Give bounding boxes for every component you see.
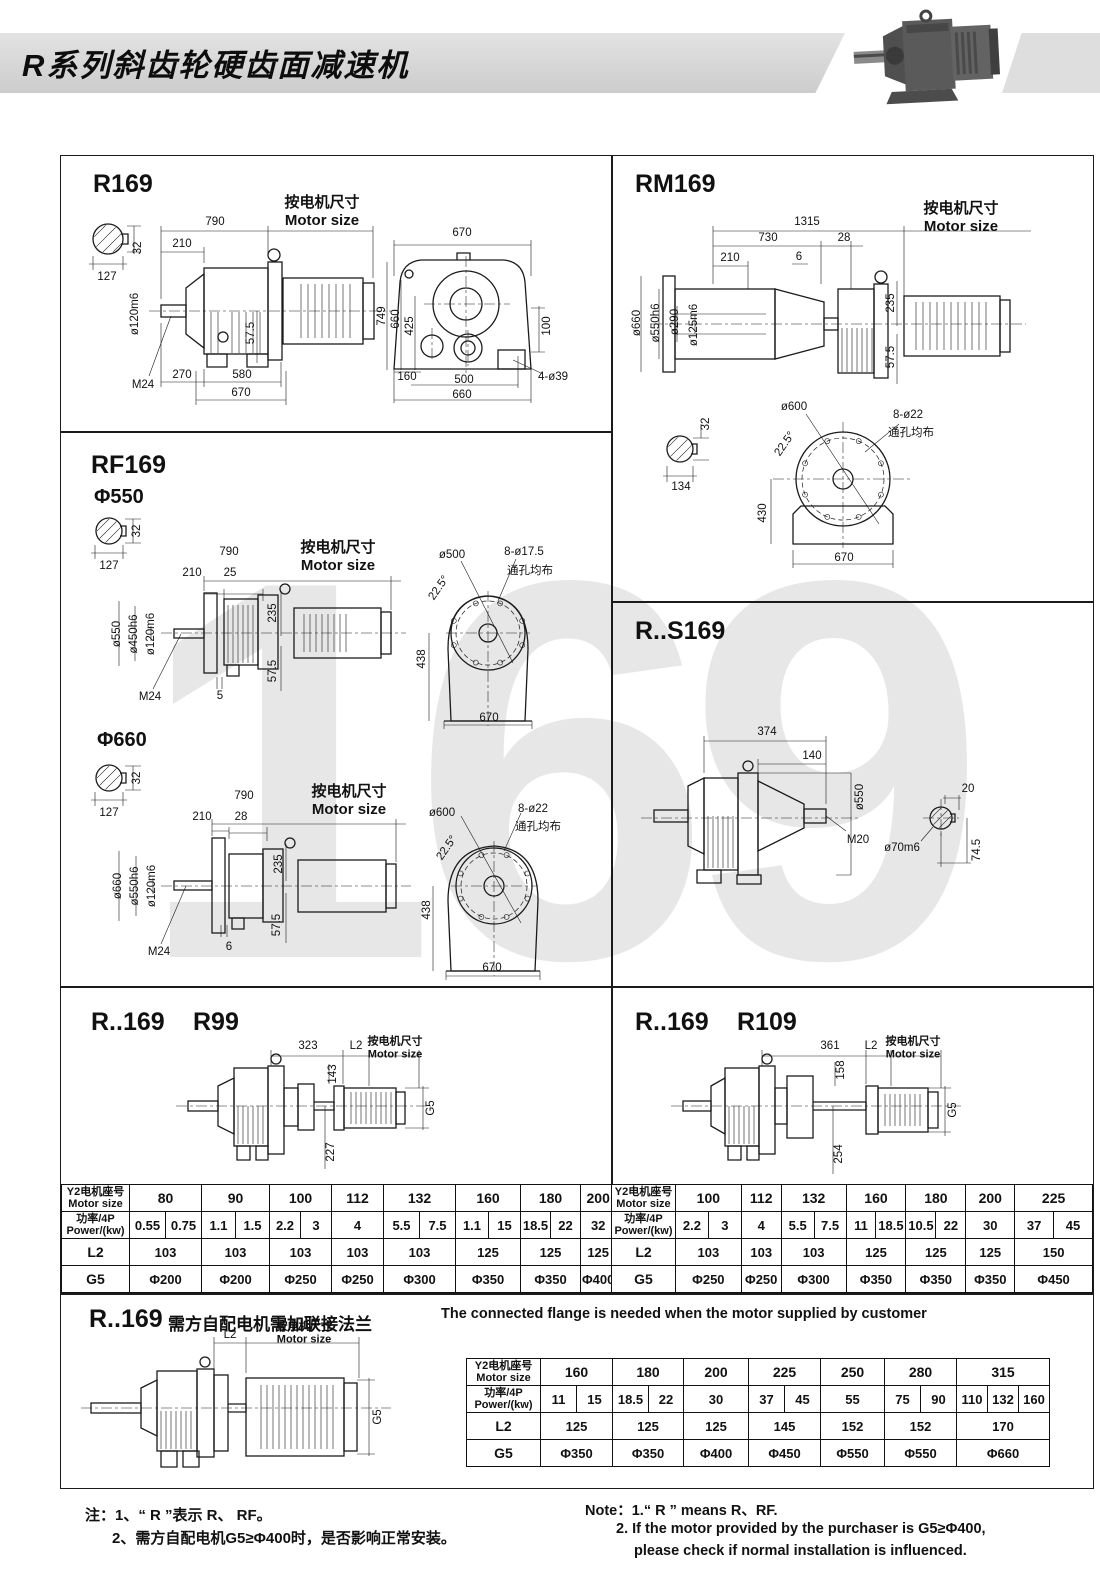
value-cell: 103 [130,1239,202,1266]
value-cell: 125 [456,1239,521,1266]
value-cell: 37 [749,1386,785,1413]
dim-label: 438 [421,900,433,919]
value-cell: Φ350 [521,1266,581,1293]
row-header-cell: Y2电机座号 Motor size [612,1185,676,1212]
dim-label: 5 [217,690,223,702]
dim-label: 430 [757,503,769,522]
dim-label: G5 [425,1100,437,1115]
dim-label: 660 [390,309,402,328]
value-cell: 0.75 [166,1212,202,1239]
motor-size-label: 按电机尺寸 Motor size [277,1320,332,1345]
motor-size-label: 按电机尺寸 Motor size [284,194,359,230]
row-header-cell: G5 [467,1440,541,1467]
dim-label: 580 [232,369,251,381]
dim-label: 374 [757,726,776,738]
dim-label: 57.5 [885,346,897,368]
dim-label: 235 [267,603,279,622]
panel-subtitle-cn: 需方自配电机需加联接法兰 [168,1310,372,1335]
dim-label: ø600 [781,401,807,413]
value-cell: 125 [906,1239,966,1266]
value-cell: 200 [966,1185,1015,1212]
value-cell: Φ450 [749,1440,821,1467]
value-cell: 315 [957,1359,1050,1386]
row-header-cell: 功率/4P Power/(kw) [467,1386,541,1413]
dim-label: 790 [205,216,224,228]
value-cell: 160 [456,1185,521,1212]
dim-label: 670 [834,552,853,564]
value-cell: 1.1 [456,1212,489,1239]
spec-table-flange: Y2电机座号 Motor size160180200225250280315功率… [466,1358,1050,1467]
dim-label: M24 [132,379,154,391]
dim-label: 74.5 [971,839,983,861]
note-en-3: please check if normal installation is i… [634,1543,967,1559]
rm169-drawing [611,156,1093,601]
dim-label: 790 [219,546,238,558]
value-cell: 112 [741,1185,781,1212]
dim-label: 235 [273,854,285,873]
dim-label: 235 [885,293,897,312]
motor-size-label: 按电机尺寸 Motor size [311,783,386,819]
value-cell: 22 [649,1386,684,1413]
dim-label: 210 [720,252,739,264]
dim-label: 57.5 [267,660,279,682]
value-cell: 125 [684,1413,749,1440]
value-cell: 2.2 [675,1212,708,1239]
dim-label: 127 [99,807,118,819]
value-cell: 15 [489,1212,521,1239]
dim-label: 670 [479,712,498,724]
value-cell: Φ350 [966,1266,1015,1293]
value-cell: 125 [541,1413,613,1440]
dim-label: 32 [131,772,143,785]
row-header-cell: Y2电机座号 Motor size [62,1185,130,1212]
panel-title: RF169 [91,451,166,480]
dim-label: 790 [234,790,253,802]
value-cell: 160 [1019,1386,1050,1413]
value-cell: 125 [966,1239,1015,1266]
value-cell: Φ400 [684,1440,749,1467]
dim-label: L2 [350,1040,363,1052]
dim-label: 8-ø22 [518,803,548,815]
value-cell: 132 [384,1185,456,1212]
dim-label: 100 [541,316,553,335]
panel-title: R99 [193,1008,239,1037]
dim-label: 通孔均布 [507,562,553,578]
value-cell: 152 [885,1413,957,1440]
value-cell: Φ350 [613,1440,684,1467]
value-cell: 250 [821,1359,885,1386]
dim-label: ø70m6 [884,842,920,854]
dim-label: ø120m6 [145,613,157,655]
value-cell: 112 [332,1185,384,1212]
panel-subtitle: Φ660 [97,729,147,752]
value-cell: 2.2 [270,1212,301,1239]
panel-rm169: RM169 1315 730 28 210 6 按电机尺寸 Motor size… [611,156,1093,601]
panel-title: R..169 [91,1008,165,1037]
value-cell: 7.5 [420,1212,456,1239]
dim-label: ø550h6 [129,866,141,905]
value-cell: 150 [1015,1239,1093,1266]
row-header-cell: 功率/4P Power/(kw) [612,1212,676,1239]
value-cell: 75 [885,1386,921,1413]
row-header-cell: L2 [612,1239,676,1266]
panel-title: R..169 [89,1305,163,1334]
value-cell: 152 [821,1413,885,1440]
drawing-sheet: 169 [60,155,1094,1489]
dim-label: ø660 [112,873,124,899]
dim-label: 127 [99,560,118,572]
dim-label: 749 [376,306,388,325]
dim-label: 254 [833,1144,845,1163]
dim-label: G5 [372,1409,384,1424]
panel-r109: R..169 R109 361 L2 按电机尺寸 Motor size 158 … [611,986,1093,1184]
motor-size-label: 按电机尺寸 Motor size [886,1035,941,1060]
value-cell: 170 [957,1413,1050,1440]
panel-rs169: R..S169 374 140 ø550 M20 20 ø70m6 74.5 [611,601,1093,986]
panel-title: R..169 [635,1008,709,1037]
dim-label: 438 [416,649,428,668]
dim-label: G5 [947,1102,959,1117]
gearmotor-photo [848,4,1010,110]
value-cell: 132 [781,1185,846,1212]
value-cell: 100 [675,1185,741,1212]
page: R系列斜齿轮硬齿面减速机 169 [0,0,1100,1583]
value-cell: 30 [684,1386,749,1413]
dim-label: 500 [454,374,473,386]
value-cell: 1.5 [236,1212,270,1239]
value-cell: 15 [577,1386,613,1413]
dim-label: ø550 [854,784,866,810]
value-cell: 5.5 [781,1212,814,1239]
value-cell: 45 [1054,1212,1093,1239]
value-cell: 103 [384,1239,456,1266]
value-cell: Φ250 [332,1266,384,1293]
value-cell: Φ550 [821,1440,885,1467]
panel-rf169: RF169 Φ550 127 32 790 210 25 按电机尺寸 Motor… [61,431,611,986]
value-cell: 100 [270,1185,332,1212]
value-cell: 18.5 [876,1212,906,1239]
spec-table-r109: Y2电机座号 Motor size100112132160180200225功率… [611,1184,1093,1293]
value-cell: Φ200 [202,1266,270,1293]
dim-label: 670 [452,227,471,239]
dim-label: L2 [224,1329,237,1341]
dim-label: 127 [97,271,116,283]
value-cell: 10.5 [906,1212,936,1239]
value-cell: Φ350 [541,1440,613,1467]
dim-label: 57.5 [271,914,283,936]
dim-label: 8-ø17.5 [504,546,544,558]
dim-label: 210 [172,238,191,250]
value-cell: 45 [785,1386,821,1413]
panel-title: R..S169 [635,617,725,646]
value-cell: Φ550 [885,1440,957,1467]
value-cell: 30 [966,1212,1015,1239]
note-en-1: Note：1.“ R ” means R、RF. [585,1499,778,1520]
dim-label: 6 [226,941,232,953]
dim-label: L2 [865,1040,878,1052]
value-cell: 3 [301,1212,332,1239]
value-cell: 180 [906,1185,966,1212]
value-cell: 3 [708,1212,741,1239]
value-cell: 37 [1015,1212,1054,1239]
row-header-cell: L2 [467,1413,541,1440]
dim-label: 143 [327,1064,339,1083]
value-cell: 103 [781,1239,846,1266]
note-en-2: 2. If the motor provided by the purchase… [616,1521,986,1537]
value-cell: 103 [270,1239,332,1266]
value-cell: 18.5 [613,1386,649,1413]
panel-title: R169 [93,170,153,199]
dim-label: 通孔均布 [515,818,561,834]
value-cell: 0.55 [130,1212,166,1239]
dim-label: 20 [962,783,975,795]
dim-label: 25 [224,567,237,579]
panel-title: R109 [737,1008,797,1037]
value-cell: 225 [1015,1185,1093,1212]
value-cell: 125 [521,1239,581,1266]
dim-label: ø550 [111,621,123,647]
value-cell: Φ350 [846,1266,906,1293]
panel-r99: R..169 R99 323 L2 按电机尺寸 Motor size 143 2… [61,986,611,1184]
row-header-cell: G5 [62,1266,130,1293]
value-cell: Φ250 [270,1266,332,1293]
dim-label: 57.5 [245,322,257,344]
dim-label: 4-ø39 [538,371,568,383]
dim-label: M20 [847,834,869,846]
dim-label: 425 [404,316,416,335]
value-cell: Φ450 [1015,1266,1093,1293]
dim-label: 670 [231,387,250,399]
value-cell: Φ300 [384,1266,456,1293]
motor-size-label: 按电机尺寸 Motor size [923,200,998,236]
panel-subtitle-en: The connected flange is needed when the … [441,1306,927,1322]
value-cell: 90 [202,1185,270,1212]
dim-label: ø120m6 [146,865,158,907]
value-cell: 18.5 [521,1212,551,1239]
dim-label: ø290 [669,309,681,335]
dim-label: 227 [325,1142,337,1161]
value-cell: Φ250 [741,1266,781,1293]
value-cell: 4 [332,1212,384,1239]
dim-label: 28 [235,811,248,823]
dim-label: 270 [172,369,191,381]
motor-size-label: 按电机尺寸 Motor size [368,1035,423,1060]
value-cell: 1.1 [202,1212,236,1239]
panel-subtitle: Φ550 [94,486,144,509]
row-header-cell: 功率/4P Power/(kw) [62,1212,130,1239]
row-header-cell: Y2电机座号 Motor size [467,1359,541,1386]
value-cell: 180 [521,1185,581,1212]
dim-label: 6 [796,251,802,263]
dim-label: ø500 [439,549,465,561]
value-cell: 103 [675,1239,741,1266]
value-cell: 125 [846,1239,906,1266]
dim-label: M24 [148,946,170,958]
dim-label: 323 [298,1040,317,1052]
dim-label: ø450h6 [128,614,140,653]
dim-label: 210 [192,811,211,823]
value-cell: 160 [541,1359,613,1386]
dim-label: 730 [758,232,777,244]
panel-title: RM169 [635,170,716,199]
note-cn-1: 注：1、“ R ”表示 R、 RF。 [85,1504,272,1525]
value-cell: 110 [957,1386,988,1413]
dim-label: 28 [838,232,851,244]
value-cell: 132 [988,1386,1019,1413]
rf169-drawing [61,431,611,986]
value-cell: Φ350 [456,1266,521,1293]
dim-label: 134 [671,481,690,493]
value-cell: 90 [921,1386,957,1413]
header-banner-right [1002,33,1100,93]
value-cell: 103 [741,1239,781,1266]
dim-label: 140 [802,750,821,762]
dim-label: 660 [452,389,471,401]
dim-label: 32 [132,242,144,255]
value-cell: 22 [936,1212,966,1239]
value-cell: Φ300 [781,1266,846,1293]
dim-label: ø600 [429,807,455,819]
motor-size-label: 按电机尺寸 Motor size [300,539,375,575]
dim-label: ø125m6 [688,304,700,346]
spec-table-r99: Y2电机座号 Motor size8090100112132160180200功… [61,1184,616,1293]
value-cell: 103 [202,1239,270,1266]
dim-label: 通孔均布 [888,424,934,440]
dim-label: 1315 [794,216,820,228]
dim-label: 32 [700,418,712,431]
value-cell: 11 [846,1212,876,1239]
dim-label: 210 [182,567,201,579]
dim-label: ø550h6 [650,303,662,342]
rs169-drawing [611,601,1093,986]
dim-label: M24 [139,691,161,703]
value-cell: 4 [741,1212,781,1239]
value-cell: 55 [821,1386,885,1413]
value-cell: 180 [613,1359,684,1386]
dim-label: ø120m6 [129,293,141,335]
value-cell: 103 [332,1239,384,1266]
dim-label: 670 [482,962,501,974]
value-cell: Φ200 [130,1266,202,1293]
value-cell: 280 [885,1359,957,1386]
row-header-cell: G5 [612,1266,676,1293]
panel-r169: R169 127 32 790 按电机尺寸 Motor size 210 ø12… [61,156,611,431]
dim-label: 361 [820,1040,839,1052]
value-cell: 5.5 [384,1212,420,1239]
value-cell: 200 [684,1359,749,1386]
value-cell: 225 [749,1359,821,1386]
note-cn-2: 2、需方自配电机G5≥Φ400时，是否影响正常安装。 [112,1527,456,1548]
value-cell: 80 [130,1185,202,1212]
dim-label: 32 [131,525,143,538]
row-header-cell: L2 [62,1239,130,1266]
value-cell: Φ660 [957,1440,1050,1467]
value-cell: 145 [749,1413,821,1440]
dim-label: 8-ø22 [893,409,923,421]
value-cell: 22 [551,1212,581,1239]
page-title: R系列斜齿轮硬齿面减速机 [22,40,409,85]
value-cell: Φ350 [906,1266,966,1293]
value-cell: 160 [846,1185,906,1212]
dim-label: 158 [835,1060,847,1079]
value-cell: 11 [541,1386,577,1413]
value-cell: 7.5 [814,1212,846,1239]
value-cell: 125 [613,1413,684,1440]
dim-label: ø660 [631,310,643,336]
value-cell: Φ250 [675,1266,741,1293]
dim-label: 160 [397,371,416,383]
